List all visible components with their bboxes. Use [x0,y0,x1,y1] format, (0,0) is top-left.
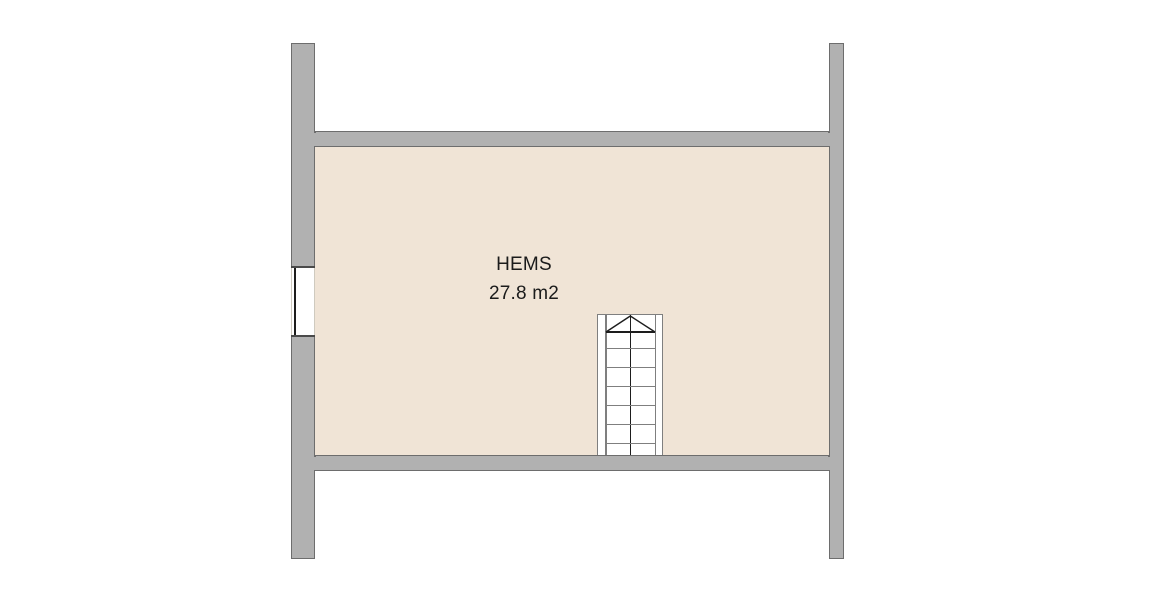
window-jamb-bottom [291,335,315,337]
window-glass-line [294,268,296,335]
stair-tread [606,348,655,349]
window-outer-edge [291,268,292,335]
wall-junction-patch-bottom-right [826,457,832,470]
stair-tread [606,367,655,368]
floor-plan-canvas: HEMS 27.8 m2 [0,0,1150,600]
stair-tread [606,424,655,425]
stair-tread [606,386,655,387]
wall-junction-patch-top-left [312,133,318,146]
wall-bottom [315,455,829,471]
room-name-label: HEMS [424,250,624,279]
room-area-label: 27.8 m2 [424,279,624,308]
stair-tread [606,405,655,406]
wall-right [829,43,844,559]
staircase [597,314,663,456]
stair-direction-arrow-icon [598,315,664,334]
stair-tread [606,443,655,444]
room-label-block: HEMS 27.8 m2 [424,250,624,308]
wall-junction-patch-top-right [826,133,832,146]
window [291,266,315,337]
wall-junction-patch-bottom-left [312,457,318,470]
window-inner-edge [314,268,315,335]
wall-top [315,131,829,147]
